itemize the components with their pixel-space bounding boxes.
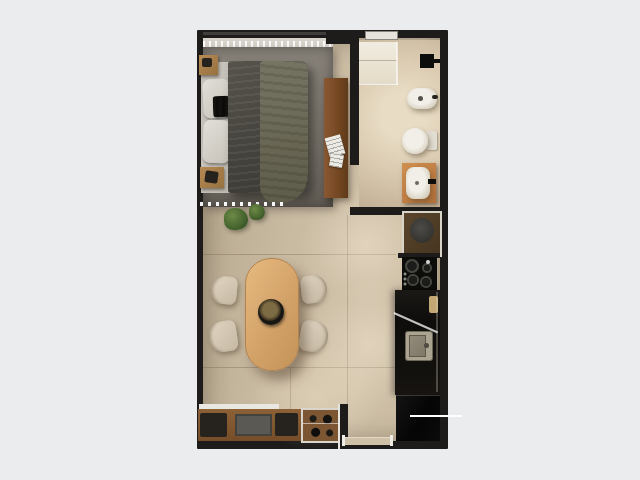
potted-plant (249, 204, 265, 220)
cooktop (402, 257, 437, 290)
knit-cushion (213, 96, 230, 118)
notebook (204, 170, 219, 184)
leader-line (410, 415, 462, 417)
shower-arm (434, 59, 440, 63)
floor-plan-render (0, 0, 640, 480)
bidet-faucet (432, 95, 438, 99)
window (203, 32, 333, 35)
tile-seam (203, 254, 396, 255)
bed-blanket (260, 61, 308, 203)
magazine (329, 153, 344, 168)
console-cabinet (200, 413, 227, 437)
tile-seam (203, 367, 397, 368)
display-case (301, 408, 341, 443)
toilet (402, 128, 428, 154)
door-threshold (345, 437, 391, 445)
shower-glass (359, 83, 398, 85)
bathroom-wall (350, 30, 359, 165)
potted-plant (224, 208, 248, 230)
basin-drain (415, 181, 419, 185)
pillow (202, 120, 230, 164)
centerpiece-bowl (258, 299, 284, 325)
refrigerator (396, 395, 440, 441)
bidet-drain (418, 96, 423, 101)
door-jamb (390, 435, 393, 446)
display-shelf (303, 423, 339, 424)
shower (359, 42, 397, 84)
door-jamb (342, 435, 345, 446)
counter-edge-highlight (436, 292, 438, 392)
basin-faucet (428, 179, 436, 184)
sink-faucet (424, 343, 429, 348)
bathroom-window (365, 31, 398, 40)
shower-seam (359, 60, 397, 61)
nightstand-decor (202, 58, 212, 67)
shower-glass (396, 42, 398, 85)
shower-fixture (420, 54, 434, 68)
rug-fringe-dashes (200, 202, 288, 206)
speaker (275, 413, 298, 436)
washer-drum (410, 218, 434, 243)
tv (235, 414, 272, 436)
